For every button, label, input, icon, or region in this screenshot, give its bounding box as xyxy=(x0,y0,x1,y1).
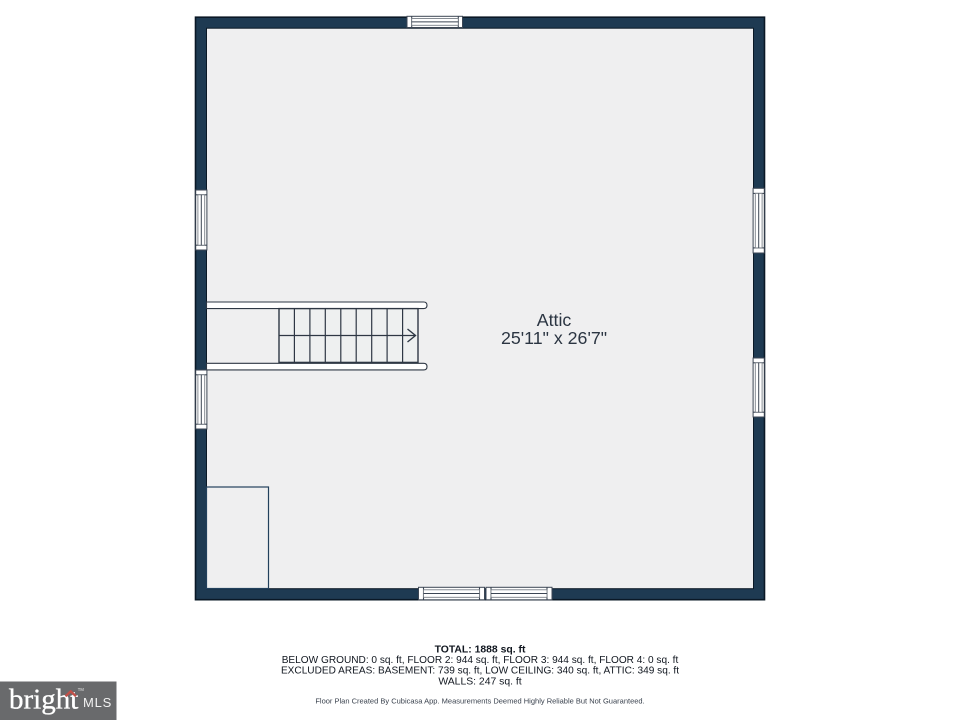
svg-text:MLS: MLS xyxy=(83,695,112,710)
svg-text:bright: bright xyxy=(9,684,78,716)
svg-text:TM: TM xyxy=(78,687,85,692)
svg-text:BELOW GROUND: 0 sq. ft, FLOOR: BELOW GROUND: 0 sq. ft, FLOOR 2: 944 sq.… xyxy=(282,655,679,666)
svg-text:EXCLUDED AREAS: BASEMENT: 739: EXCLUDED AREAS: BASEMENT: 739 sq. ft, LO… xyxy=(281,666,679,677)
svg-text:25'11" x 26'7": 25'11" x 26'7" xyxy=(501,328,607,348)
svg-text:TOTAL: 1888 sq. ft: TOTAL: 1888 sq. ft xyxy=(435,644,526,655)
svg-text:Floor Plan Created By Cubicasa: Floor Plan Created By Cubicasa App. Meas… xyxy=(315,697,644,706)
svg-text:WALLS: 247 sq. ft: WALLS: 247 sq. ft xyxy=(438,676,521,687)
svg-text:Attic: Attic xyxy=(537,310,572,330)
